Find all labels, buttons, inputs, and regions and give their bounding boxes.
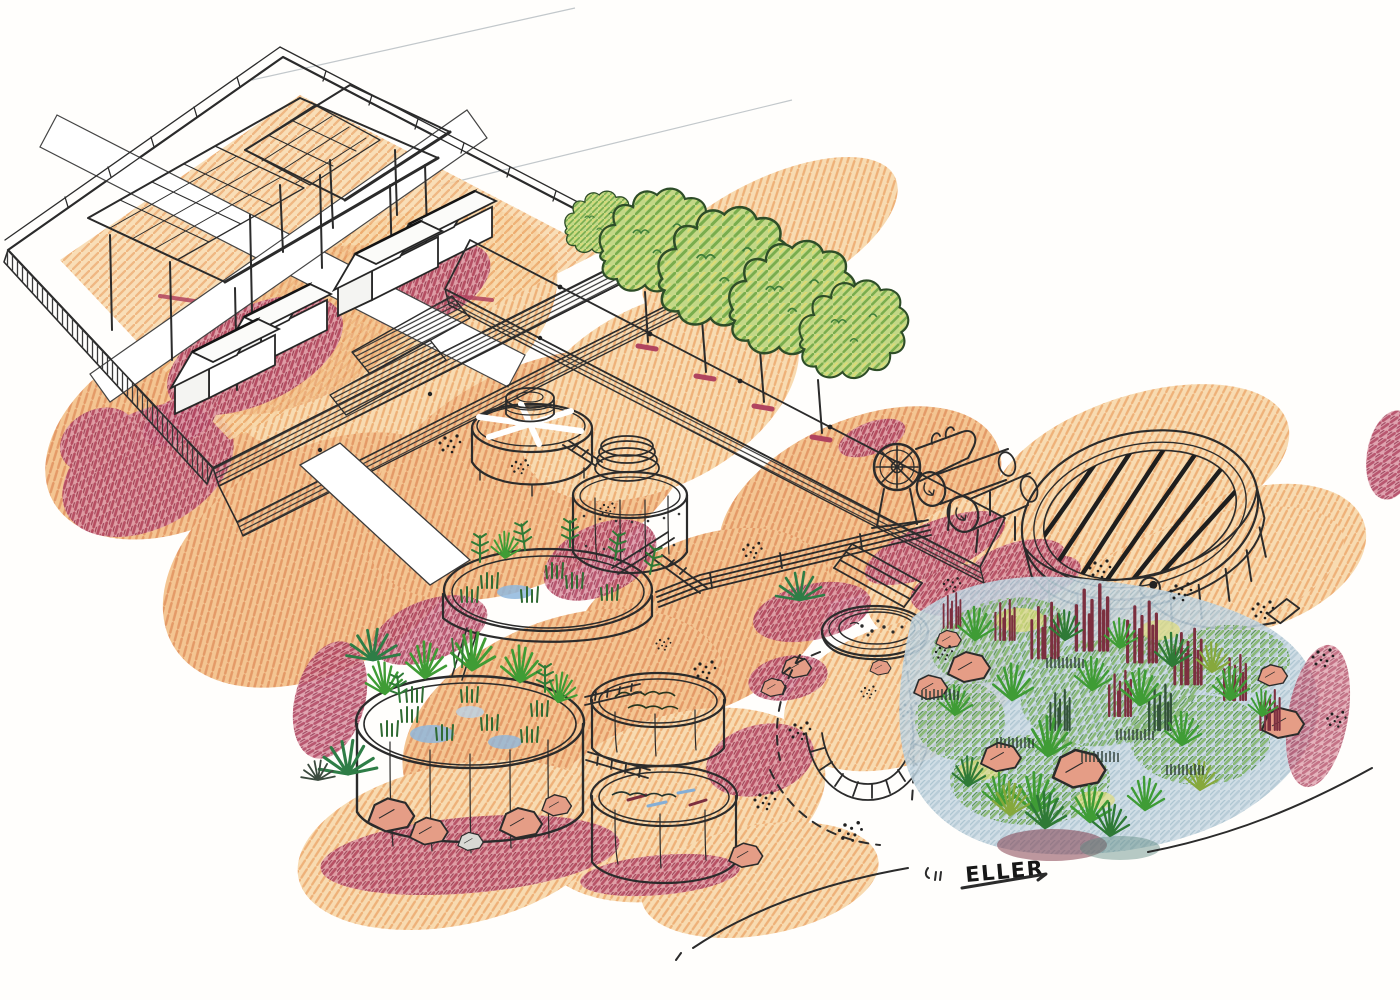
signature: ELLER — [926, 856, 1046, 888]
scale-marks — [926, 868, 941, 880]
site-sketch: ELLER — [0, 0, 1400, 1000]
sketch-canvas: ELLER — [0, 0, 1400, 1000]
